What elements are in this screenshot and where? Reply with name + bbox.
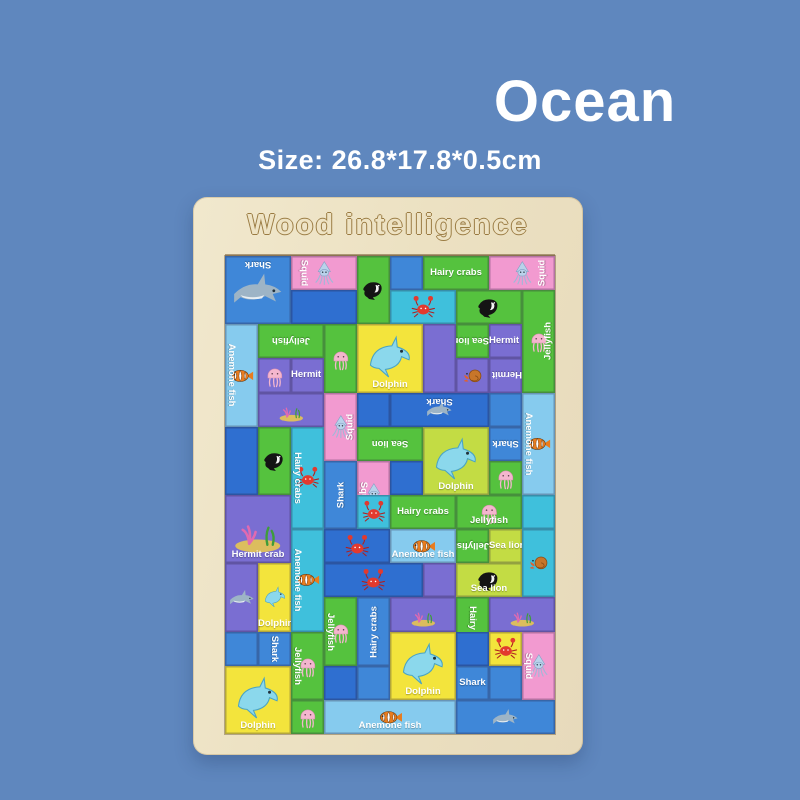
- puzzle-tile-jellyfish: [291, 700, 324, 734]
- squid-icon: [311, 260, 338, 287]
- shark-icon: [492, 704, 519, 731]
- tile-label: Sea lion: [489, 540, 522, 551]
- dolphin-icon: [430, 435, 481, 486]
- seabed-icon: [232, 503, 283, 554]
- shark-icon: [426, 396, 453, 423]
- product-size: Size: 26.8*17.8*0.5cm: [140, 145, 660, 176]
- puzzle-tile-shark: Shark: [456, 666, 489, 700]
- tile-label: Jellyfish: [456, 540, 489, 551]
- jellyfish-icon: [328, 619, 354, 645]
- board-brand-engraving: Wood intelligence: [193, 209, 583, 242]
- puzzle-tile-dolphin: Dolphin: [258, 563, 291, 631]
- dolphin-icon: [232, 674, 283, 725]
- puzzle-tile-shark: Shark: [258, 632, 291, 666]
- puzzle-tile-seabed: [489, 597, 555, 631]
- puzzle-tile-plain: [291, 290, 357, 324]
- puzzle-tile-sea-lion: Sea lion: [489, 529, 522, 563]
- product-title: Ocean: [455, 68, 715, 135]
- squid-icon: [328, 414, 354, 440]
- jellyfish-icon: [526, 328, 552, 354]
- puzzle-tile-seabed: [258, 393, 324, 427]
- seabed-icon: [278, 396, 305, 423]
- puzzle-tile-sea-lion: Sea lion: [456, 563, 522, 597]
- tile-label: Hairy crabs: [423, 267, 489, 278]
- hermit-icon: [460, 363, 486, 389]
- tile-label: Jellyfish: [258, 335, 324, 346]
- jellyfish-icon: [328, 346, 354, 372]
- puzzle-tile-plain: [324, 666, 357, 700]
- clownfish-icon: [377, 704, 404, 731]
- puzzle-tile-hairy-crabs: Hairy crabs: [423, 256, 489, 290]
- tile-label: Shark: [269, 635, 280, 661]
- puzzle-area: SharkSquidHairy crabsSquidJellyfishAnemo…: [225, 256, 555, 734]
- tile-label: Hermit crab: [489, 335, 522, 346]
- puzzle-tile-jellyfish: [489, 461, 522, 495]
- puzzle-tile-hairy-crabs: Hairy crabs: [291, 427, 324, 529]
- seal-icon: [476, 294, 503, 321]
- squid-icon: [509, 260, 536, 287]
- puzzle-tile-jellyfish: [258, 358, 291, 392]
- puzzle-tile-jellyfish: [324, 324, 357, 392]
- puzzle-tile-plain: [423, 324, 456, 392]
- crab-icon: [361, 499, 387, 525]
- tile-label: Sea lion: [456, 335, 489, 346]
- seal-icon: [476, 567, 503, 594]
- dolphin-icon: [364, 333, 415, 384]
- tile-label: Hermit crab: [291, 369, 324, 380]
- puzzle-tile-anemone-fish: Anemone fish: [390, 529, 456, 563]
- puzzle-tile-shark: Shark: [390, 393, 489, 427]
- puzzle-tile-squid: Squid: [489, 256, 555, 290]
- puzzle-tile-plain: [225, 632, 258, 666]
- puzzle-tile-crab: [489, 632, 522, 666]
- dolphin-icon: [397, 640, 448, 691]
- puzzle-tile-dolphin: Dolphin: [225, 666, 291, 734]
- puzzle-tile-jellyfish: Jellyfish: [258, 324, 324, 358]
- tile-label: Sea lion: [357, 438, 423, 449]
- puzzle-tile-plain: [225, 427, 258, 495]
- puzzle-tile-sea-lion: Sea lion: [456, 324, 489, 358]
- puzzle-tile-plain: [489, 666, 522, 700]
- puzzle-tile-crab: [357, 495, 390, 529]
- squid-icon: [526, 653, 552, 679]
- jellyfish-icon: [476, 499, 503, 526]
- tile-label: Squid: [299, 260, 310, 286]
- puzzle-tile-plain: [357, 393, 390, 427]
- seabed-icon: [509, 601, 536, 628]
- puzzle-tile-squid: Squid: [291, 256, 357, 290]
- seal-icon: [361, 277, 387, 303]
- clownfish-icon: [229, 363, 255, 389]
- shark-icon: [229, 585, 255, 611]
- puzzle-tile-jellyfish: Jellyfish: [456, 495, 522, 529]
- crab-icon: [410, 294, 437, 321]
- jellyfish-icon: [493, 465, 519, 491]
- puzzle-tile-hermit: [456, 358, 489, 392]
- tile-label: Squid: [536, 260, 547, 286]
- clownfish-icon: [410, 533, 437, 560]
- puzzle-tile-anemone-fish: Anemone fish: [291, 529, 324, 631]
- clownfish-icon: [295, 567, 321, 593]
- tile-label: Hairy crabs: [390, 506, 456, 517]
- crab-icon: [344, 533, 371, 560]
- puzzle-tile-plain: [357, 666, 390, 700]
- puzzle-tile-hermit-crab: Hermit crab: [489, 358, 522, 392]
- product-photo: { "title": "Ocean", "size_text": "Size: …: [0, 0, 800, 800]
- puzzle-tile-hermit-crab: Hermit crab: [225, 495, 291, 563]
- tile-label: Shark: [489, 438, 522, 449]
- puzzle-board: Wood intelligence SharkSquidHairy crabsS…: [193, 197, 583, 755]
- puzzle-tile-plain: [390, 461, 423, 495]
- tile-label: Hermit crab: [489, 369, 522, 380]
- crab-icon: [295, 465, 321, 491]
- puzzle-tile-plain: [522, 495, 555, 529]
- hermit-icon: [526, 550, 552, 576]
- puzzle-tile-seal: [357, 256, 390, 324]
- puzzle-tile-seal: [258, 427, 291, 495]
- puzzle-tile-crab: [324, 563, 423, 597]
- puzzle-tile-hermit: [522, 529, 555, 597]
- dolphin-icon: [262, 585, 288, 611]
- puzzle-tile-jellyfish: Jellyfish: [291, 632, 324, 700]
- crab-icon: [360, 567, 387, 594]
- puzzle-tile-hermit-crab: Hermit crab: [291, 358, 324, 392]
- puzzle-tile-squid: Squid: [522, 632, 555, 700]
- puzzle-tile-dolphin: Dolphin: [390, 632, 456, 700]
- tile-label: Shark: [456, 677, 489, 688]
- puzzle-tile-plain: [423, 563, 456, 597]
- puzzle-tile-hairy-crabs: Hairy crabs: [357, 597, 390, 665]
- puzzle-tile-anemone-fish: Anemone fish: [324, 700, 456, 734]
- puzzle-tile-shark: Shark: [489, 427, 522, 461]
- puzzle-tile-seabed: [390, 597, 456, 631]
- puzzle-tile-anemone-fish: Anemone fish: [522, 393, 555, 495]
- seabed-icon: [410, 601, 437, 628]
- puzzle-tile-plain: [456, 632, 489, 666]
- puzzle-tile-shark: Shark: [324, 461, 357, 529]
- puzzle-tile-shark: [456, 700, 555, 734]
- puzzle-tile-sea-lion: Sea lion: [357, 427, 423, 461]
- crab-icon: [493, 636, 519, 662]
- puzzle-tile-plain: [390, 256, 423, 290]
- puzzle-tile-dolphin: Dolphin: [357, 324, 423, 392]
- jellyfish-icon: [295, 704, 321, 730]
- seal-icon: [262, 448, 288, 474]
- puzzle-tile-shark: Shark: [225, 256, 291, 324]
- puzzle-tile-jellyfish: Jellyfish: [522, 290, 555, 392]
- jellyfish-icon: [295, 653, 321, 679]
- tile-label: Dolphin: [258, 618, 291, 629]
- puzzle-tile-shark: [225, 563, 258, 631]
- puzzle-tile-jellyfish: Jellyfish: [324, 597, 357, 665]
- clownfish-icon: [526, 431, 552, 457]
- puzzle-tile-jellyfish: Jellyfish: [456, 529, 489, 563]
- puzzle-tile-squid: Squid: [324, 393, 357, 461]
- shark-icon: [232, 264, 283, 315]
- puzzle-tile-crab: [390, 290, 456, 324]
- jellyfish-icon: [262, 363, 288, 389]
- tile-label: Hairy crabs: [368, 606, 379, 658]
- puzzle-tile-hermit-crab: Hermit crab: [489, 324, 522, 358]
- puzzle-tile-hairy-crabs: Hairy crabs: [390, 495, 456, 529]
- puzzle-tile-plain: [489, 393, 522, 427]
- puzzle-tile-dolphin: Dolphin: [423, 427, 489, 495]
- tile-label: Shark: [335, 482, 346, 508]
- puzzle-tile-anemone-fish: Anemone fish: [225, 324, 258, 426]
- puzzle-tile-crab: [324, 529, 390, 563]
- puzzle-tile-seal: [456, 290, 522, 324]
